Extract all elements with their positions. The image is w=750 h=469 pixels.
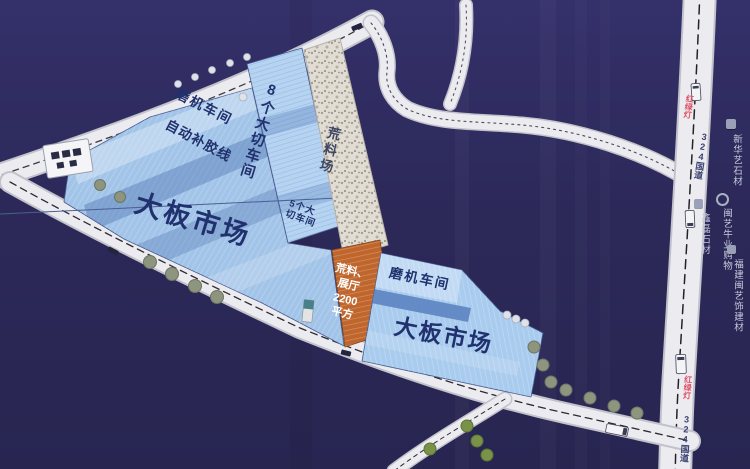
circle-badge-icon bbox=[716, 193, 729, 206]
truck bbox=[685, 210, 695, 227]
building-icon bbox=[694, 199, 703, 208]
site-plan-map: 磨机车间 自动补胶线 大板市场 8个大切车间 5个大 切车间 荒料场 荒料、 展… bbox=[0, 0, 750, 469]
building-icon bbox=[727, 245, 736, 254]
traffic-signal-label-south: 红绿灯 bbox=[681, 375, 694, 408]
poi-label-fujian-minyi: 福建闽艺饰建材 bbox=[730, 259, 744, 341]
truck bbox=[676, 354, 687, 373]
building-icon bbox=[726, 119, 736, 129]
poi-label-xinhuayi: 新华艺石材 bbox=[729, 134, 743, 200]
small-sign bbox=[302, 300, 314, 323]
map-canvas bbox=[0, 0, 750, 469]
poi-label-xinlei: 鑫磊石材 bbox=[697, 213, 711, 265]
entrance-sign bbox=[43, 139, 94, 179]
